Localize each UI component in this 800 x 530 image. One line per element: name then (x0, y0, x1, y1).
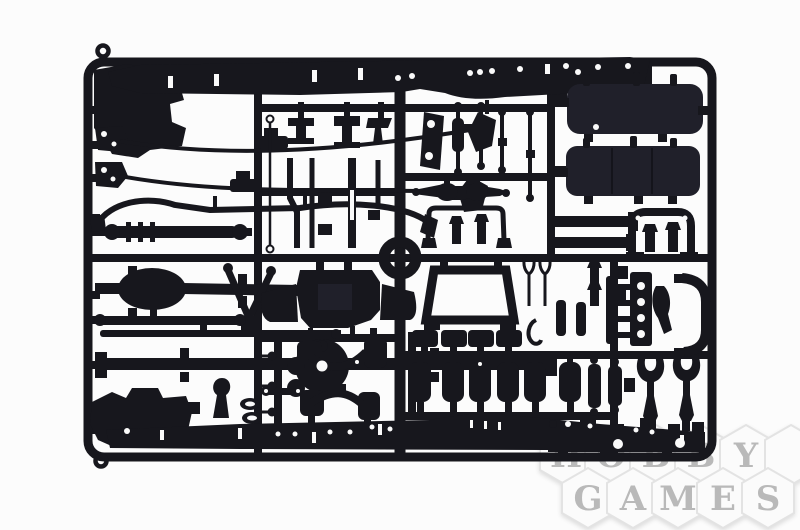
watermark-letter: S (756, 479, 781, 519)
watermark-letter: Y (733, 436, 759, 476)
watermark-letter: G (573, 479, 602, 519)
watermark-letter: M (659, 479, 697, 519)
photo-stage: H O B B Y G A M E S (0, 0, 800, 530)
part-fuel-tank-2 (555, 136, 700, 204)
watermark-letter: A (619, 479, 647, 519)
watermark-letter: E (710, 479, 736, 519)
